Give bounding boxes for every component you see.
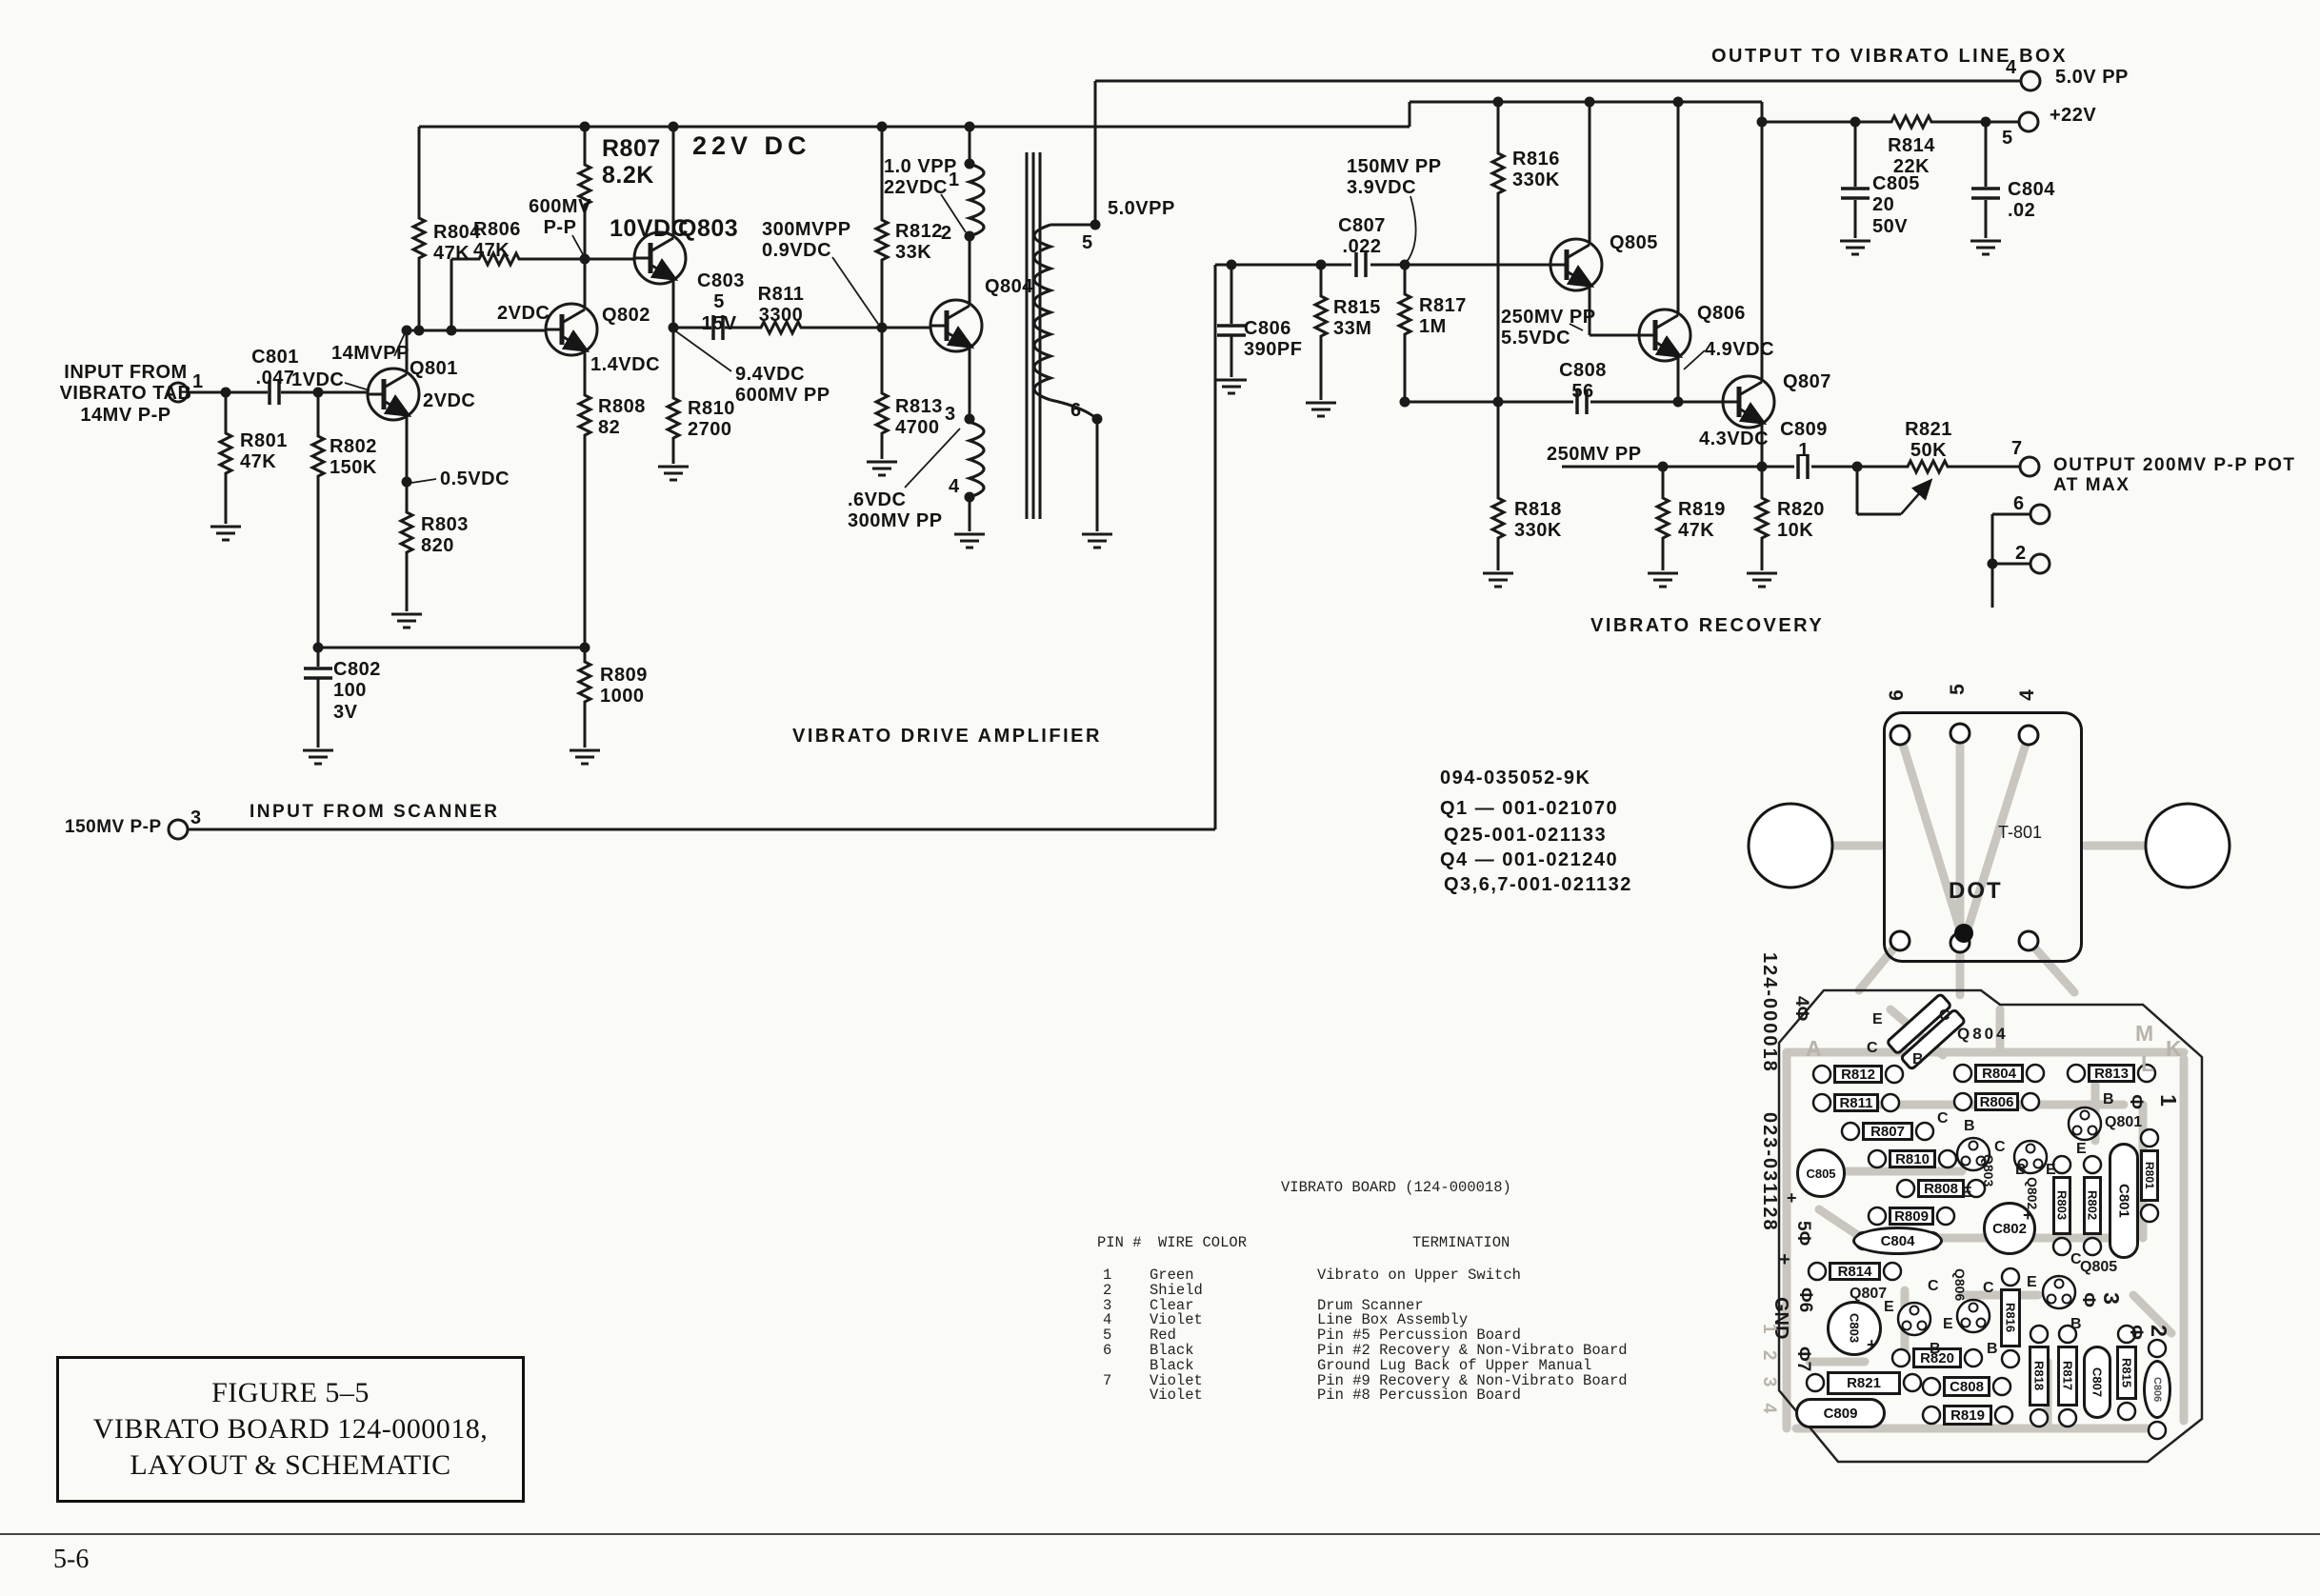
label-4p9vdc: 4.9VDC (1705, 339, 1774, 360)
label-q802: Q802 (602, 305, 650, 326)
label-9p4vdc: 9.4VDC 600MV PP (735, 364, 830, 407)
pcb-part-c808: C808 (1943, 1376, 1990, 1397)
pcb-letter-b: B (2015, 1162, 2027, 1179)
pcb-ghost-a: A (1806, 1036, 1822, 1062)
pcb-label-q805: Q805 (2080, 1259, 2117, 1276)
label-250mvpp: 250MV PP (1547, 444, 1642, 465)
pcb-letter-b: B (1930, 1341, 1941, 1358)
pcb-part-c801: C801 (2109, 1143, 2139, 1259)
pcb-part-r814: R814 (1829, 1262, 1881, 1281)
pcb-letter-e: E (1962, 1185, 1972, 1202)
label-r813: R813 4700 (895, 396, 943, 439)
label-r815: R815 33M (1333, 297, 1381, 340)
pcb-letter-b: B (1964, 1118, 1975, 1135)
label-r803: R803 820 (421, 514, 469, 557)
pcb-letter-c: C (1937, 1110, 1949, 1127)
label-pin1: 1 (192, 371, 204, 392)
pcb-part-r811: R811 (1833, 1093, 1879, 1112)
label-r814: R814 22K (1882, 135, 1941, 178)
label-t-pin3: 3 (945, 404, 956, 425)
label-10vdc: 10VDC (610, 215, 689, 242)
pcb-part-r809: R809 (1889, 1207, 1934, 1226)
label-150mv-pp: 150MV P-P (65, 817, 162, 837)
pcb-part-r802: R802 (2083, 1176, 2102, 1235)
table-cell-termination: Vibrato on Up­per Switch (1317, 1267, 1521, 1284)
label-c809: C809 1 (1777, 419, 1830, 462)
label-q803: Q803 (678, 215, 738, 242)
pcb-pin-top-6: 6 (1886, 689, 1909, 701)
pcb-pin-top-4: 4 (2016, 689, 2039, 701)
pcb-c803-plus: + (1867, 1335, 1877, 1355)
label-t-pin1: 1 (949, 170, 960, 190)
label-pin4: 4 (2006, 57, 2017, 78)
label-2vdc-q801: 2VDC (423, 390, 475, 411)
label-r821: R821 50K (1897, 419, 1960, 462)
pcb-right-pin-1: 1 (2155, 1094, 2181, 1107)
label-14mvpp: 14MVPP (331, 343, 410, 364)
pcb-label-t801: T-801 (1998, 823, 2042, 843)
label-r811: R811 3300 (754, 284, 808, 327)
pcb-label-q801: Q801 (2105, 1114, 2142, 1131)
label-0p5vdc: 0.5VDC (440, 469, 510, 489)
label-250mvpp-5p5: 250MV PP 5.5VDC (1501, 307, 1596, 349)
label-r820: R820 10K (1777, 499, 1825, 542)
label-r818: R818 330K (1514, 499, 1562, 542)
pcb-part-r821: R821 (1827, 1371, 1901, 1395)
label-c804: C804 .02 (2008, 179, 2055, 222)
pcb-part-c807: C807 (2083, 1346, 2111, 1419)
manual-page: INPUT FROM VIBRATO TAB 14MV P-P 1 R801 4… (0, 0, 2320, 1596)
label-output-200mv: OUTPUT 200MV P-P POT AT MAX (2053, 455, 2320, 496)
label-1vdc: 1VDC (291, 369, 344, 390)
label-vibrato-recovery: VIBRATO RECOVERY (1590, 615, 1824, 636)
schematic-wires-and-symbols (169, 71, 2050, 839)
label-4p3vdc: 4.3VDC (1699, 429, 1769, 449)
part-number-line-1: 094-035052-9K (1440, 768, 1591, 788)
label-r817: R817 1M (1419, 295, 1467, 338)
label-pin2: 2 (2015, 543, 2027, 564)
pcb-letter-e: E (1943, 1316, 1953, 1333)
label-t-pin2: 2 (941, 223, 952, 244)
pcb-part-r817: R817 (2057, 1346, 2078, 1406)
label-p6vdc: .6VDC 300MV PP (848, 489, 943, 532)
label-plus22v: +22V (2050, 105, 2096, 126)
label-300mvpp: 300MVPP 0.9VDC (762, 219, 851, 262)
label-r806: R806 47K (473, 219, 521, 262)
label-r819: R819 47K (1678, 499, 1726, 542)
part-number-line-4: Q4 — 001-021240 (1440, 849, 1618, 870)
pcb-part-r803: R803 (2052, 1176, 2071, 1235)
pcb-letter-b: B (1912, 1051, 1924, 1068)
pcb-right-pin-2-pad: Φ (2125, 1325, 2146, 1340)
pcb-letter-b: B (2103, 1091, 2114, 1108)
pcb-label-phi6: Φ6 (1794, 1287, 1815, 1312)
pcb-letter-e: E (1884, 1299, 1894, 1316)
label-c808: C808 56 (1556, 360, 1610, 403)
label-c806: C806 390PF (1244, 318, 1302, 361)
pcb-label-5phi: 5Φ (1792, 1221, 1813, 1246)
page-number: 5-6 (53, 1545, 89, 1575)
label-5vpp-sec: 5.0VPP (1108, 198, 1175, 219)
pcb-ghost-k: K (2166, 1036, 2182, 1062)
pcb-label-q803: Q803 (1981, 1154, 1996, 1187)
pcb-right-pin-3: 3 (2098, 1292, 2124, 1305)
label-150mvpp-3p9: 150MV PP 3.9VDC (1347, 156, 1442, 199)
pcb-letter-b: B (2070, 1316, 2082, 1333)
pcb-letter-e: E (2027, 1274, 2037, 1291)
table-cell-termination: Pin #8 Percussion Board (1317, 1387, 1521, 1404)
label-pin5: 5 (2002, 128, 2013, 149)
label-input-scanner: INPUT FROM SCANNER (250, 802, 499, 822)
table-cell-color: Violet (1150, 1387, 1203, 1404)
pcb-label-dot: DOT (1949, 878, 2003, 905)
label-10vpp-22vdc: 1.0 VPP 22VDC (884, 156, 957, 199)
pcb-right-pin-1-pad: Φ (2125, 1094, 2146, 1109)
label-pin6: 6 (2013, 493, 2025, 514)
label-input-vibrato-tab: INPUT FROM VIBRATO TAB 14MV P-P (59, 362, 192, 426)
pcb-part-r807: R807 (1862, 1122, 1913, 1141)
label-r812: R812 33K (895, 221, 943, 264)
pcb-label-plus: + (1779, 1249, 1790, 1271)
footer-rule (0, 1533, 2320, 1535)
table-header-color: WIRE COLOR (1158, 1234, 1247, 1251)
pcb-label-q806: Q806 (1952, 1268, 1968, 1301)
label-q806: Q806 (1697, 303, 1746, 324)
label-c807: C807 .022 (1333, 215, 1390, 258)
label-q801: Q801 (410, 358, 458, 379)
pcb-part-r815: R815 (2116, 1346, 2137, 1400)
pcb-letter-c: C (1983, 1280, 1994, 1297)
pcb-c805-plus: + (1787, 1188, 1797, 1208)
pcb-label-q807: Q807 (1850, 1286, 1887, 1303)
figure-caption-box: FIGURE 5–5 VIBRATO BOARD 124-000018, LAY… (56, 1356, 525, 1503)
label-pin7: 7 (2011, 438, 2023, 459)
pcb-right-pin-2: 2 (2146, 1325, 2171, 1337)
label-t-pin4: 4 (949, 476, 960, 497)
pcb-part-r808: R808 (1917, 1179, 1965, 1198)
pcb-ghost-l: L (2141, 1051, 2154, 1077)
label-r809: R809 1000 (600, 665, 648, 708)
pcb-part-c809: C809 (1795, 1398, 1886, 1428)
table-header-pin: PIN # (1097, 1234, 1142, 1251)
label-vibrato-drive-amplifier: VIBRATO DRIVE AMPLIFIER (792, 726, 1102, 747)
label-600mv: 600MV P-P (522, 196, 598, 239)
caption-line-2: VIBRATO BOARD 124-000018, (93, 1413, 488, 1446)
label-q805: Q805 (1610, 232, 1658, 253)
label-c805: C805 20 50V (1872, 173, 1920, 237)
label-5vpp-pin4: 5.0V PP (2055, 67, 2129, 88)
table-header-termination: TERMINATION (1412, 1234, 1510, 1251)
pcb-serial-124-000018: 124-000018 (1758, 952, 1780, 1073)
pcb-letter-c: C (2070, 1251, 2082, 1268)
pcb-letter-e: E (2076, 1141, 2087, 1158)
label-r808: R808 82 (598, 396, 646, 439)
pcb-right-pin-3-pad: Φ (2077, 1292, 2098, 1307)
label-2vdc-q802: 2VDC (497, 303, 550, 324)
pcb-edge-numbers: 1 2 3 4 (1758, 1324, 1779, 1419)
pcb-serial-023-031128: 023-031128 (1758, 1112, 1780, 1232)
pcb-label-4phi: 4Φ (1790, 996, 1811, 1021)
label-t-pin6: 6 (1070, 400, 1082, 421)
pcb-ghost-m: M (2135, 1021, 2153, 1047)
caption-line-3: LAYOUT & SCHEMATIC (130, 1449, 450, 1482)
pcb-pin-top-5: 5 (1947, 684, 1970, 695)
pcb-letter-e: E (2046, 1162, 2056, 1179)
pcb-part-r801: R801 (2140, 1149, 2159, 1202)
pcb-part-c805: C805 (1796, 1148, 1846, 1198)
pcb-letter-e: E (1872, 1011, 1883, 1028)
label-1p4vdc: 1.4VDC (590, 354, 660, 375)
pcb-letter-c: C (1928, 1278, 1939, 1295)
pcb-label-q804: Q804 (1957, 1025, 2009, 1044)
pcb-part-c806: C806 (2143, 1360, 2171, 1419)
label-r807: R807 8.2K (602, 135, 661, 189)
pcb-part-r813: R813 (2088, 1064, 2135, 1083)
pcb-letter-c: C (1939, 1007, 1950, 1025)
label-c802: C802 100 3V (333, 659, 381, 723)
pcb-part-r816: R816 (2000, 1288, 2021, 1347)
label-t-pin5: 5 (1082, 232, 1093, 253)
pcb-letter-c: C (1867, 1040, 1878, 1057)
pcb-part-r804: R804 (1974, 1064, 2024, 1083)
pcb-c802-plus: + (2023, 1206, 2033, 1226)
label-pin3: 3 (190, 808, 202, 828)
label-r802: R802 150K (330, 436, 377, 479)
pcb-letter-c: C (1994, 1139, 2006, 1156)
pcb-transformer-outline (1883, 711, 2083, 963)
pcb-part-r819: R819 (1943, 1405, 1992, 1426)
part-number-line-5: Q3,6,7-001-021132 (1444, 874, 1632, 895)
pcb-part-r810: R810 (1889, 1149, 1936, 1168)
label-c803: C803 5 15V (697, 270, 741, 334)
pcb-part-r806: R806 (1974, 1092, 2019, 1111)
pcb-part-c804: C804 (1852, 1227, 1943, 1255)
table-title: VIBRATO BOARD (124-000018) (1281, 1179, 1511, 1196)
label-r810: R810 2700 (688, 398, 735, 441)
caption-line-1: FIGURE 5–5 (211, 1377, 370, 1409)
part-number-line-3: Q25-001-021133 (1444, 825, 1607, 846)
label-22vdc: 22V DC (692, 131, 811, 160)
label-r816: R816 330K (1512, 149, 1560, 191)
pcb-label-phi7: Φ7 (1792, 1347, 1813, 1371)
label-q807: Q807 (1783, 371, 1831, 392)
table-cell-pin: 7 (1103, 1372, 1111, 1389)
table-cell-pin: 6 (1103, 1342, 1111, 1359)
label-q804: Q804 (985, 276, 1033, 297)
pcb-part-r812: R812 (1833, 1065, 1883, 1084)
pcb-letter-b: B (1987, 1341, 1998, 1358)
part-number-line-2: Q1 — 001-021070 (1440, 798, 1618, 819)
label-r801: R801 47K (240, 430, 288, 473)
pcb-part-r818: R818 (2029, 1346, 2050, 1406)
